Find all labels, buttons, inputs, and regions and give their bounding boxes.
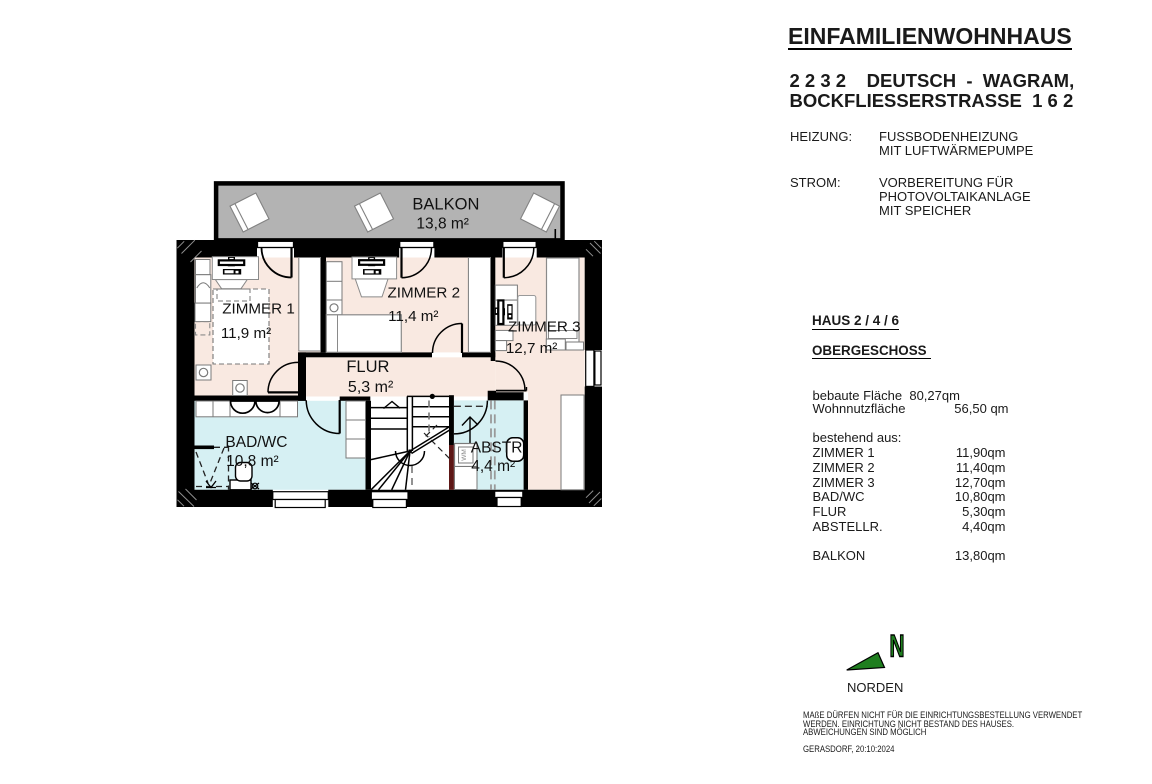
svg-text:12,7 m²: 12,7 m² bbox=[506, 340, 558, 357]
svg-text:ZIMMER 1: ZIMMER 1 bbox=[222, 300, 295, 317]
svg-text:FLUR: FLUR bbox=[346, 358, 389, 376]
svg-text:11,9 m²: 11,9 m² bbox=[221, 325, 271, 342]
svg-text:ABSTR: ABSTR bbox=[471, 439, 523, 456]
svg-text:4,4 m²: 4,4 m² bbox=[471, 458, 515, 475]
svg-text:10,8 m²: 10,8 m² bbox=[226, 453, 279, 470]
svg-text:5,3 m²: 5,3 m² bbox=[348, 379, 394, 396]
svg-text:13,8 m²: 13,8 m² bbox=[416, 215, 469, 232]
svg-text:WM: WM bbox=[461, 449, 468, 461]
svg-text:BALKON: BALKON bbox=[412, 195, 479, 213]
svg-text:N: N bbox=[890, 628, 905, 663]
svg-text:BAD/WC: BAD/WC bbox=[225, 434, 287, 451]
svg-text:11,4 m²: 11,4 m² bbox=[388, 308, 438, 325]
svg-text:ZIMMER 2: ZIMMER 2 bbox=[388, 285, 461, 302]
svg-text:ZIMMER 3: ZIMMER 3 bbox=[508, 319, 581, 336]
